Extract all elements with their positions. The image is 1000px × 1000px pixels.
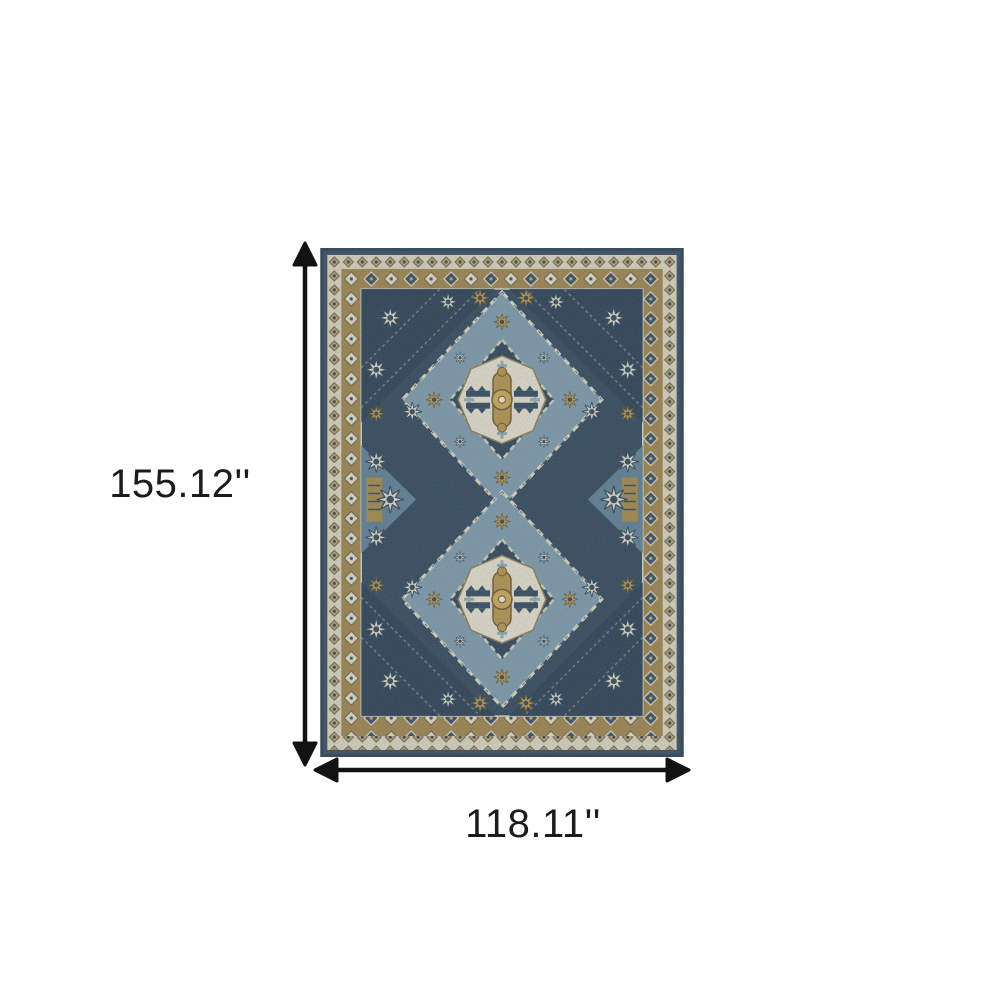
width-dimension-label: 118.11''	[448, 802, 618, 847]
height-dimension-label: 155.12''	[95, 462, 265, 507]
rug-image	[320, 248, 684, 757]
product-dimension-diagram: 155.12'' 118.11''	[0, 0, 1000, 1000]
width-arrow-icon	[312, 752, 692, 788]
height-arrow-icon	[287, 240, 323, 768]
